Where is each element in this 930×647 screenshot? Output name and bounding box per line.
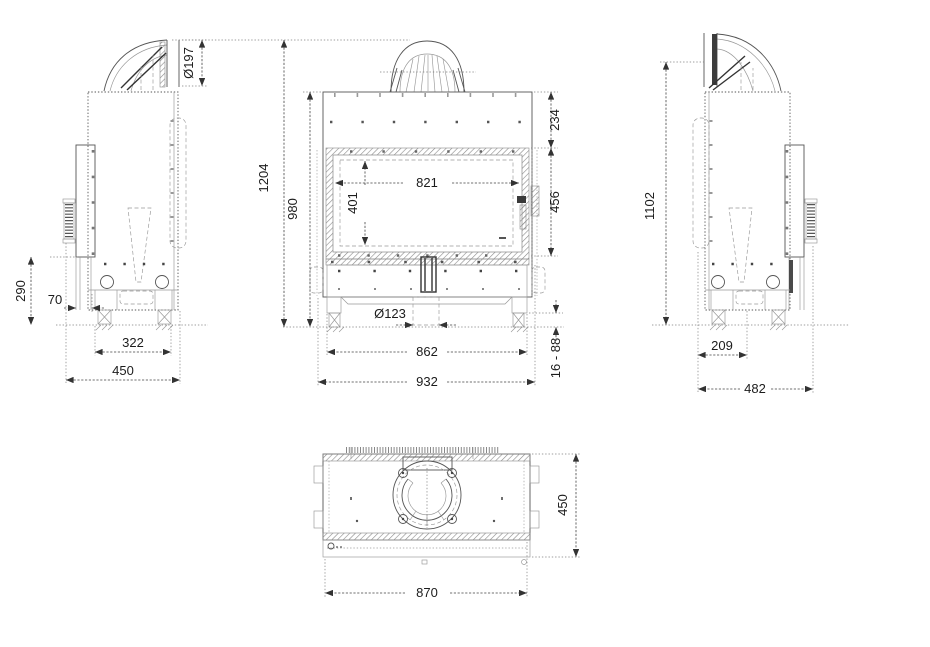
door-latch: [517, 196, 526, 203]
dim-label-feet-spacing: 322: [122, 335, 144, 350]
flue-elbow-right: [704, 33, 781, 91]
dim-label-depth-right: 482: [744, 381, 766, 396]
hole-left-1: [101, 276, 114, 289]
hole-right-1: [712, 276, 725, 289]
handle-spring-left: [63, 199, 75, 243]
dim-label-glass-height: 401: [345, 192, 360, 214]
feet-left: [98, 310, 171, 324]
dim-label-top-width: 870: [416, 585, 438, 600]
dim-label-body-height: 980: [285, 198, 300, 220]
fireplace-technical-drawing: Ø197 290 70 322 450: [0, 0, 930, 647]
dim-label-rear-offset: 209: [711, 338, 733, 353]
dim-label-rear-height: 290: [13, 280, 28, 302]
feet-right: [712, 310, 785, 324]
base-section: [283, 257, 564, 332]
wedge-left: [128, 208, 151, 282]
flue-dome: [380, 41, 476, 92]
top-view: 450 870: [314, 447, 581, 600]
drawing-page: Ø197 290 70 322 450: [0, 0, 930, 647]
flue-elbow-left: [104, 40, 179, 91]
dim-label-inner-width: 862: [416, 344, 438, 359]
dim-label-top-section: 234: [547, 109, 562, 131]
front-view: 1204 980 234 456 821 401 Ø123 862: [172, 40, 564, 389]
dims-top: 450 870: [325, 454, 581, 600]
dim-label-flue-outlet-diameter: Ø123: [374, 306, 406, 321]
dim-label-overall-height: 1204: [256, 164, 271, 193]
flue-outlet-projection: [413, 297, 439, 325]
dim-label-depth-left: 450: [112, 363, 134, 378]
handle-spring-right: [805, 199, 817, 243]
dim-label-glass-width: 821: [416, 175, 438, 190]
dim-label-front-offset: 70: [48, 292, 62, 307]
dim-label-top-depth: 450: [555, 494, 570, 516]
wedge-right: [729, 208, 752, 282]
dim-label-flue-diameter: Ø197: [181, 47, 196, 79]
hole-left-2: [156, 276, 169, 289]
body-left: [50, 92, 208, 330]
hole-right-2: [767, 276, 780, 289]
side-view-right: 1102 209 482: [642, 33, 850, 396]
side-view-left: Ø197 290 70 322 450: [13, 40, 208, 384]
dim-label-flue-height: 1102: [642, 192, 657, 220]
dims-left: Ø197 290 70 322 450: [13, 40, 208, 384]
dim-label-door-height: 456: [547, 191, 562, 213]
flue-collar: [393, 461, 461, 529]
body-right: [652, 92, 850, 330]
dim-label-leg-range: 16 - 88: [548, 338, 563, 378]
dim-label-overall-width: 932: [416, 374, 438, 389]
